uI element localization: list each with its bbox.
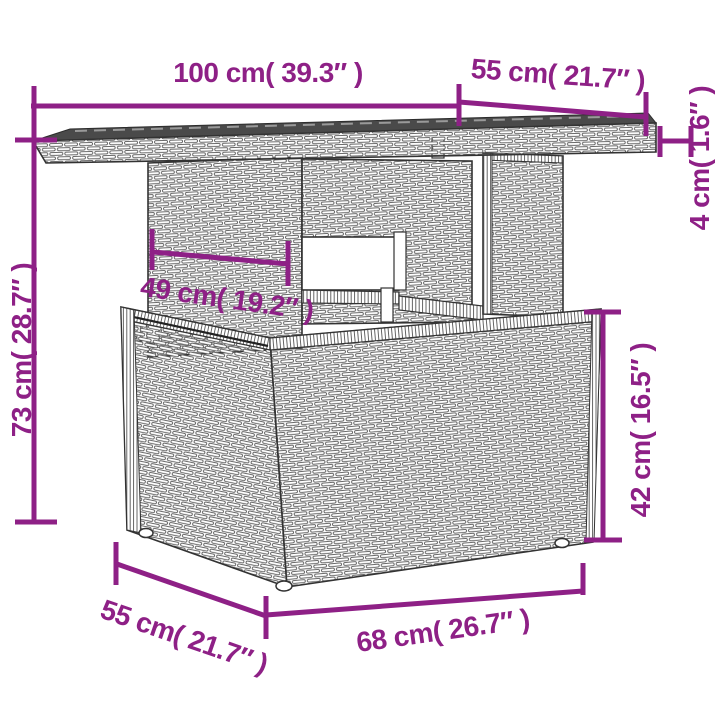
base-right-leg [483,153,563,317]
dimension-label-table-height: 73 cm( 28.7″ ) [6,263,38,438]
dimension-label-table-width: 100 cm( 39.3″ ) [173,57,363,89]
base-right-leg-edge [483,153,492,314]
box-foot [139,529,153,538]
box-front-face [270,309,601,587]
dimension-label-tabletop-thickness: 4 cm( 1.6″ ) [684,86,716,230]
base-post [381,288,393,322]
box-foot [276,581,292,591]
box-foot [555,539,569,548]
box-left-face [121,307,287,587]
base-back-opening [302,237,399,290]
dimension-diagram: 100 cm( 39.3″ ) 55 cm( 21.7″ ) 4 cm( 1.6… [0,0,720,720]
dimension-label-box-height: 42 cm( 16.5″ ) [625,343,657,518]
base-post [394,232,406,290]
storage-box [121,307,601,591]
